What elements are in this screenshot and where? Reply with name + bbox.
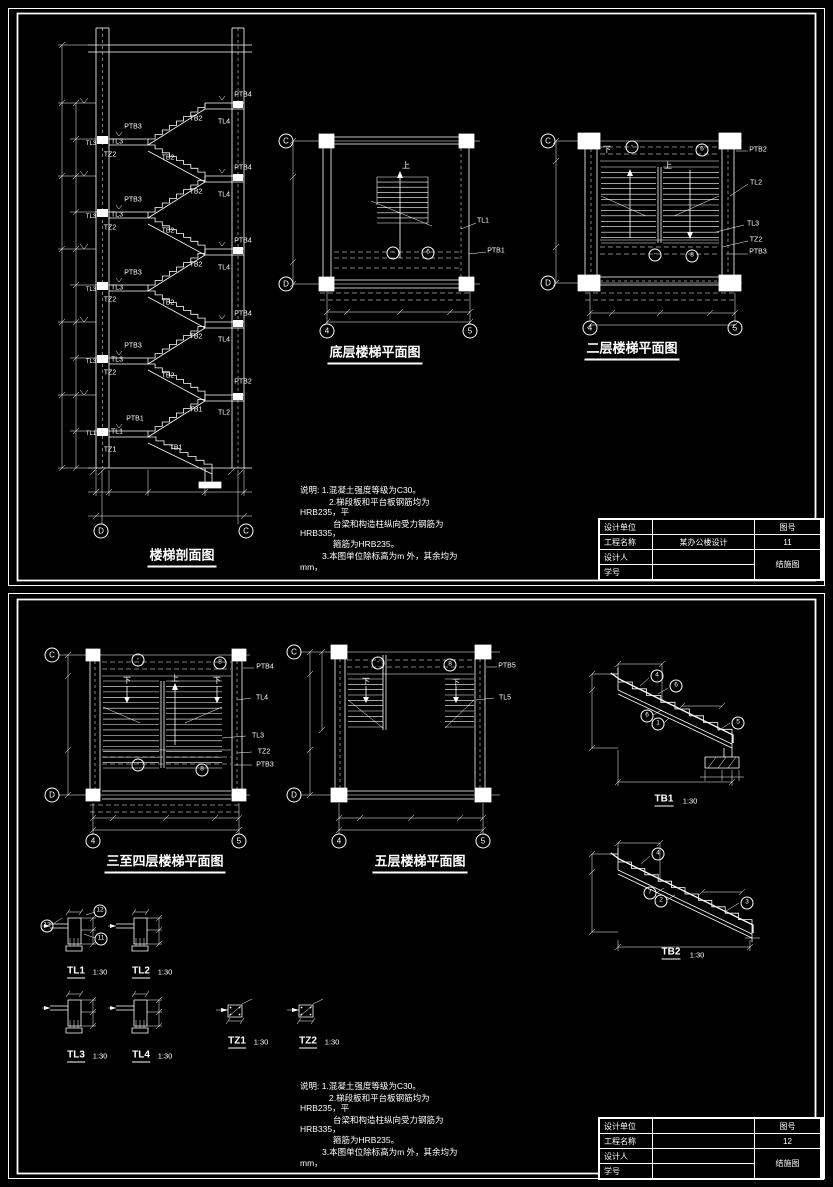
- cad-label: PTB4: [234, 238, 252, 245]
- cad-label: 下: [213, 677, 221, 685]
- cad-label: TB2: [162, 373, 175, 380]
- note-line: 3.本图单位除标高为m 外，其余均为: [322, 552, 458, 561]
- cad-label: TB1: [190, 407, 203, 414]
- cad-label: TB2: [162, 228, 175, 235]
- cad-label: TL2: [750, 180, 762, 187]
- tb1-design-unit-label: 设计单位: [600, 520, 652, 534]
- cad-label: TB2: [190, 116, 203, 123]
- cad-label: TL3: [111, 285, 123, 292]
- tb1-designer-value: [653, 550, 754, 564]
- tb2-design-unit-label: 设计单位: [600, 1119, 652, 1133]
- rebar-mark: 6: [696, 144, 709, 157]
- cad-label: PTB2: [234, 379, 252, 386]
- plan-3to4-linework: [59, 649, 254, 834]
- title-block-sheet2: 设计单位 图号 工程名称 12 设计人 结施图 学号: [598, 1117, 824, 1180]
- section-tz1-title: TZ1: [228, 1036, 246, 1049]
- grid-bubble: C: [45, 648, 60, 663]
- plan-3to4-labels: PTB4TL4TL3TZ2PTB3-8-8下上下CD45: [0, 0, 833, 1187]
- section-labels: PTB4PTB4PTB4PTB4PTB2TL4TL4TL4TL4TL2TB2TB…: [0, 0, 833, 1187]
- detail-tb2-linework: [589, 840, 760, 951]
- rebar-mark: 8: [196, 764, 209, 777]
- section-tz2-title: TZ2: [299, 1036, 317, 1049]
- plan-ground-linework: [290, 134, 486, 325]
- rebar-mark: 8: [686, 250, 699, 263]
- rebar-mark: 12: [94, 905, 107, 918]
- cad-label: TL4: [218, 337, 230, 344]
- tb1-design-unit-value: [653, 520, 754, 534]
- cad-label: TL4: [218, 265, 230, 272]
- note-line: HRB235，平: [300, 508, 349, 517]
- section-tl1-title: TL1: [67, 966, 85, 979]
- sheet2-notes: 说明: 1.混凝土强度等级为C30。2.梯段板和平台板钢筋均为HRB235，平台…: [0, 0, 833, 1187]
- tb2-fig-label: 图号: [755, 1119, 820, 1133]
- plan-second-title: 二层楼梯平面图: [584, 338, 679, 361]
- section-tl4-title: TL4: [132, 1050, 150, 1063]
- note-line: 说明: 1.混凝土强度等级为C30。: [300, 486, 421, 495]
- cad-label: PTB3: [124, 270, 142, 277]
- tb2-student-value: [653, 1164, 754, 1178]
- grid-bubble: C: [279, 134, 294, 149]
- cad-label: PTB4: [234, 311, 252, 318]
- cad-label: TB2: [162, 155, 175, 162]
- cad-label: 下: [452, 679, 460, 687]
- grid-bubble: D: [94, 524, 109, 539]
- rebar-mark: -: [649, 249, 662, 262]
- cad-label: 上: [171, 675, 179, 683]
- grid-bubble: C: [239, 524, 254, 539]
- grid-bubble: 5: [232, 834, 247, 849]
- cad-label: PTB2: [749, 147, 767, 154]
- tb2-designer-label: 设计人: [600, 1149, 652, 1163]
- section-tl3-title: TL3: [67, 1050, 85, 1063]
- cad-label: TB2: [190, 262, 203, 269]
- rebar-mark: 6: [641, 710, 654, 723]
- cad-label: TL3: [111, 357, 123, 364]
- rebar-mark: -: [387, 247, 400, 260]
- cad-label: PTB1: [126, 416, 144, 423]
- note-line: 2.梯段板和平台板钢筋均为: [329, 498, 430, 507]
- cad-label: PTB3: [124, 124, 142, 131]
- cad-label: TL3: [86, 287, 96, 293]
- rebar-mark: -: [132, 654, 145, 667]
- cad-label: TL5: [499, 695, 511, 702]
- cad-label: TB2: [190, 334, 203, 341]
- cad-label: PTB4: [234, 92, 252, 99]
- note-line: HRB235，平: [300, 1104, 349, 1113]
- tb2-student-label: 学号: [600, 1164, 652, 1178]
- cad-label: PTB4: [234, 165, 252, 172]
- section-tl4-scale: 1:30: [158, 1052, 173, 1061]
- grid-bubble: 4: [332, 834, 347, 849]
- plan-second-linework: [553, 133, 748, 328]
- detail-tb2-title: TB2: [662, 947, 681, 960]
- grid-bubble: C: [541, 134, 556, 149]
- cad-label: TL3: [86, 141, 96, 147]
- cad-label: PTB5: [498, 663, 516, 670]
- plan-fifth-labels: PTB5TL5-8下下CD45: [0, 0, 833, 1187]
- cad-label: 下: [123, 677, 131, 685]
- rebar-mark: 8: [444, 659, 457, 672]
- section-tl1-scale: 1:30: [93, 968, 108, 977]
- beam-section-marks: 131211: [0, 0, 833, 1187]
- tb2-design-unit-value: [653, 1119, 754, 1133]
- grid-bubble: 5: [476, 834, 491, 849]
- plan-fifth-title: 五层楼梯平面图: [372, 851, 467, 874]
- tb2-project-value: [653, 1134, 754, 1148]
- tb2-designer-value: [653, 1149, 754, 1163]
- plan-fifth-linework: [301, 645, 500, 834]
- detail-tb1-title: TB1: [655, 794, 674, 807]
- rebar-mark: -: [132, 759, 145, 772]
- tb1-designer-label: 设计人: [600, 550, 652, 564]
- tb1-student-label: 学号: [600, 565, 652, 579]
- plan-ground-labels: TL1PTB16-上CD45: [0, 0, 833, 1187]
- cad-label: TB2: [190, 189, 203, 196]
- rebar-mark: 5: [732, 717, 745, 730]
- rebar-mark: 2: [655, 895, 668, 908]
- plan-ground-title: 底层楼梯平面图: [327, 342, 422, 365]
- detail-tb1-scale: 1:30: [683, 797, 698, 806]
- note-line: mm，: [300, 563, 323, 572]
- rebar-mark: 7: [644, 887, 657, 900]
- tb1-project-label: 工程名称: [600, 535, 652, 549]
- cad-label: TZ2: [104, 297, 116, 304]
- cad-label: TB2: [162, 300, 175, 307]
- rebar-mark: 4: [651, 670, 664, 683]
- grid-bubble: D: [541, 276, 556, 291]
- tb1-project-value: 某办公楼设计: [653, 535, 754, 549]
- plan-second-labels: PTB2TL2TL3TZ2PTB3-6-8下上CD45: [0, 0, 833, 1187]
- rebar-mark: 6: [670, 680, 683, 693]
- grid-bubble: D: [279, 277, 294, 292]
- section-tl2-scale: 1:30: [158, 968, 173, 977]
- cad-label: TL3: [111, 212, 123, 219]
- note-line: 说明: 1.混凝土强度等级为C30。: [300, 1082, 421, 1091]
- cad-label: 下: [362, 678, 370, 686]
- cad-label: 上: [402, 162, 410, 170]
- cad-label: TL4: [218, 119, 230, 126]
- cad-label: TL3: [86, 359, 96, 365]
- grid-bubble: D: [45, 788, 60, 803]
- note-line: 台梁和构造柱纵向受力钢筋为: [333, 1116, 444, 1125]
- note-line: 箍筋为HRB235。: [333, 540, 399, 549]
- rebar-mark: 1: [652, 718, 665, 731]
- tb1-doc-type: 结施图: [755, 550, 820, 579]
- note-line: HRB335，: [300, 529, 341, 538]
- title-block-sheet1: 设计单位 图号 工程名称 某办公楼设计 11 设计人 结施图 学号: [598, 518, 824, 581]
- stair-section-linework: [58, 28, 252, 524]
- rebar-mark: 6: [422, 247, 435, 260]
- rebar-mark: 13: [41, 920, 54, 933]
- cad-label: 上: [664, 162, 672, 170]
- cad-label: TL3: [252, 733, 264, 740]
- note-line: 台梁和构造柱纵向受力钢筋为: [333, 520, 444, 529]
- cad-label: TZ2: [104, 152, 116, 159]
- cad-label: TL4: [256, 695, 268, 702]
- cad-label: TL1: [477, 218, 489, 225]
- cad-label: PTB4: [256, 664, 274, 671]
- note-line: HRB335，: [300, 1125, 341, 1134]
- cad-label: PTB3: [256, 762, 274, 769]
- cad-label: TL4: [218, 192, 230, 199]
- section-title: 楼梯剖面图: [147, 545, 216, 568]
- grid-bubble: C: [287, 645, 302, 660]
- cad-label: TL2: [218, 410, 230, 417]
- section-tz2-scale: 1:30: [325, 1038, 340, 1047]
- rebar-mark: 3: [741, 897, 754, 910]
- cad-label: TB1: [170, 445, 183, 452]
- detail-tb1-linework: [589, 661, 744, 786]
- sheet1-notes: 说明: 1.混凝土强度等级为C30。2.梯段板和平台板钢筋均为HRB235，平台…: [0, 0, 833, 1187]
- rebar-mark: 4: [652, 848, 665, 861]
- sheet2-border: [9, 594, 825, 1179]
- note-line: 箍筋为HRB235。: [333, 1136, 399, 1145]
- tb1-student-value: [653, 565, 754, 579]
- cad-label: PTB1: [487, 248, 505, 255]
- tb2-doc-type: 结施图: [755, 1149, 820, 1178]
- tb2-fig-no: 12: [755, 1134, 820, 1148]
- cad-label: 下: [603, 146, 611, 154]
- cad-linework: [0, 0, 833, 1187]
- note-line: 2.梯段板和平台板钢筋均为: [329, 1094, 430, 1103]
- cad-label: TZ2: [104, 225, 116, 232]
- cad-label: PTB3: [749, 249, 767, 256]
- tb1-fig-no: 11: [755, 535, 820, 549]
- grid-bubble: D: [287, 788, 302, 803]
- grid-bubble: 4: [583, 321, 598, 336]
- tb1-fig-label: 图号: [755, 520, 820, 534]
- plan-3to4-title: 三至四层楼梯平面图: [104, 851, 225, 874]
- rebar-mark: -: [626, 141, 639, 154]
- cad-label: TL3: [86, 214, 96, 220]
- cad-label: TL1: [111, 429, 123, 436]
- grid-bubble: 4: [320, 324, 335, 339]
- cad-label: PTB3: [124, 197, 142, 204]
- tb2-project-label: 工程名称: [600, 1134, 652, 1148]
- rebar-mark: -: [372, 657, 385, 670]
- rebar-mark: 11: [95, 933, 108, 946]
- cad-label: TL1: [86, 431, 96, 437]
- grid-bubble: 5: [728, 321, 743, 336]
- cad-label: TZ2: [104, 370, 116, 377]
- section-tl3-scale: 1:30: [93, 1052, 108, 1061]
- cad-label: TL3: [111, 139, 123, 146]
- section-tz1-scale: 1:30: [254, 1038, 269, 1047]
- note-line: 3.本图单位除标高为m 外，其余均为: [322, 1148, 458, 1157]
- column-sections-linework: [216, 999, 323, 1024]
- tb2-marks: 4723: [0, 0, 833, 1187]
- sheet1-border: [9, 9, 825, 586]
- detail-tb2-scale: 1:30: [690, 951, 705, 960]
- cad-label: TZ2: [258, 749, 270, 756]
- grid-bubble: 4: [86, 834, 101, 849]
- cad-label: PTB3: [124, 343, 142, 350]
- section-tl2-title: TL2: [132, 966, 150, 979]
- cad-label: TZ1: [104, 447, 116, 454]
- cad-label: TL3: [747, 221, 759, 228]
- cad-label: TZ2: [750, 237, 762, 244]
- grid-bubble: 5: [463, 324, 478, 339]
- note-line: mm，: [300, 1159, 323, 1168]
- tb1-marks: 46615: [0, 0, 833, 1187]
- cad-drawing-page: PTB4PTB4PTB4PTB4PTB2TL4TL4TL4TL4TL2TB2TB…: [0, 0, 833, 1187]
- rebar-mark: 8: [214, 657, 227, 670]
